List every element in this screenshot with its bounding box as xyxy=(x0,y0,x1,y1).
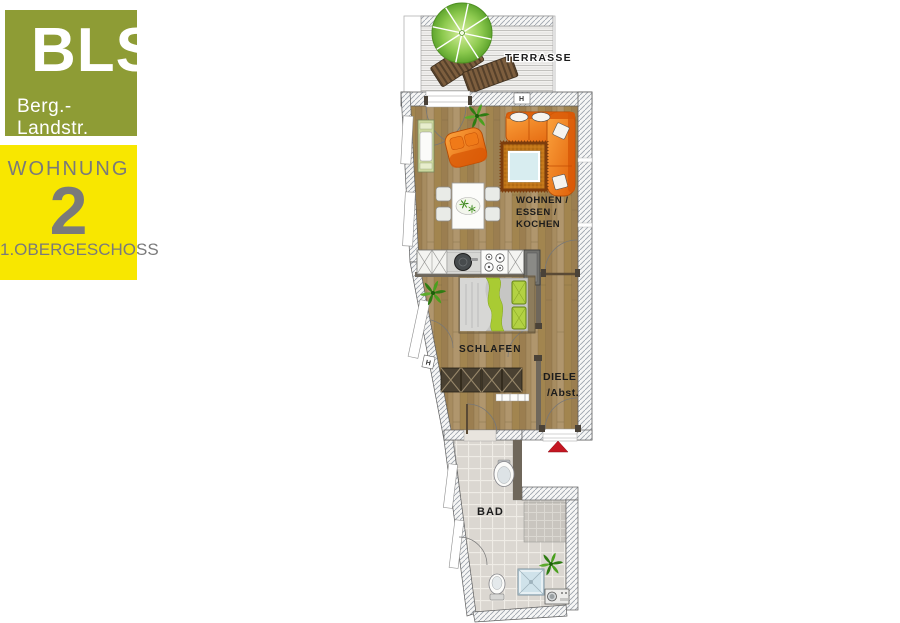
living-label-line3: KOCHEN xyxy=(516,219,560,230)
sofa-cushion xyxy=(532,113,550,122)
sofa-cushion xyxy=(510,113,528,122)
kitchen-sink xyxy=(447,252,481,272)
floorplan-page: BLS Berg.-Landstr. WOHNUNG 2 1.OBERGESCH… xyxy=(0,0,900,623)
toilet xyxy=(489,574,505,600)
wall-bath-notch xyxy=(513,440,522,500)
hall-label-line2: /Abst. xyxy=(547,387,579,399)
coffee-table xyxy=(508,151,540,182)
window-marker-box: H xyxy=(422,355,435,369)
dining-chair xyxy=(485,207,500,221)
hall-label-line1: DIELE xyxy=(543,371,576,383)
dining-table xyxy=(452,183,484,229)
shelf-cabinet xyxy=(418,120,434,172)
bath-label: BAD xyxy=(477,506,504,518)
stove xyxy=(481,250,508,274)
faucet-icon xyxy=(471,258,478,261)
terrace-door-opening xyxy=(426,91,470,107)
dining-chair xyxy=(485,187,500,201)
bed xyxy=(459,276,535,333)
dining-chair xyxy=(436,187,451,201)
sideboard xyxy=(496,394,529,401)
entry-door-opening xyxy=(543,429,577,441)
dining-chair xyxy=(436,207,451,221)
entry-arrow xyxy=(548,441,568,452)
terrace-label: TERRASSE xyxy=(505,52,572,64)
shower-tile-area xyxy=(524,502,566,542)
wall-notch-bottom xyxy=(522,487,578,500)
living-label-line1: WOHNEN / xyxy=(516,195,569,206)
wall-slit xyxy=(578,158,592,162)
wall-right xyxy=(578,92,592,440)
terrace: TERRASSE xyxy=(404,3,572,94)
bath-door-opening xyxy=(464,430,496,441)
floorplan-drawing: TERRASSE xyxy=(0,0,900,623)
wall-bedroom-hall-lower xyxy=(536,357,541,430)
platter xyxy=(456,198,480,215)
washing-machine xyxy=(545,589,569,604)
headboard xyxy=(528,277,535,332)
window xyxy=(401,116,413,164)
wall-slit xyxy=(578,223,592,227)
bedroom-label: SCHLAFEN xyxy=(459,344,521,355)
parasol-icon xyxy=(432,3,492,63)
shower xyxy=(518,569,544,595)
window-marker: H xyxy=(519,96,524,103)
living-label-line2: ESSEN / xyxy=(516,207,557,218)
